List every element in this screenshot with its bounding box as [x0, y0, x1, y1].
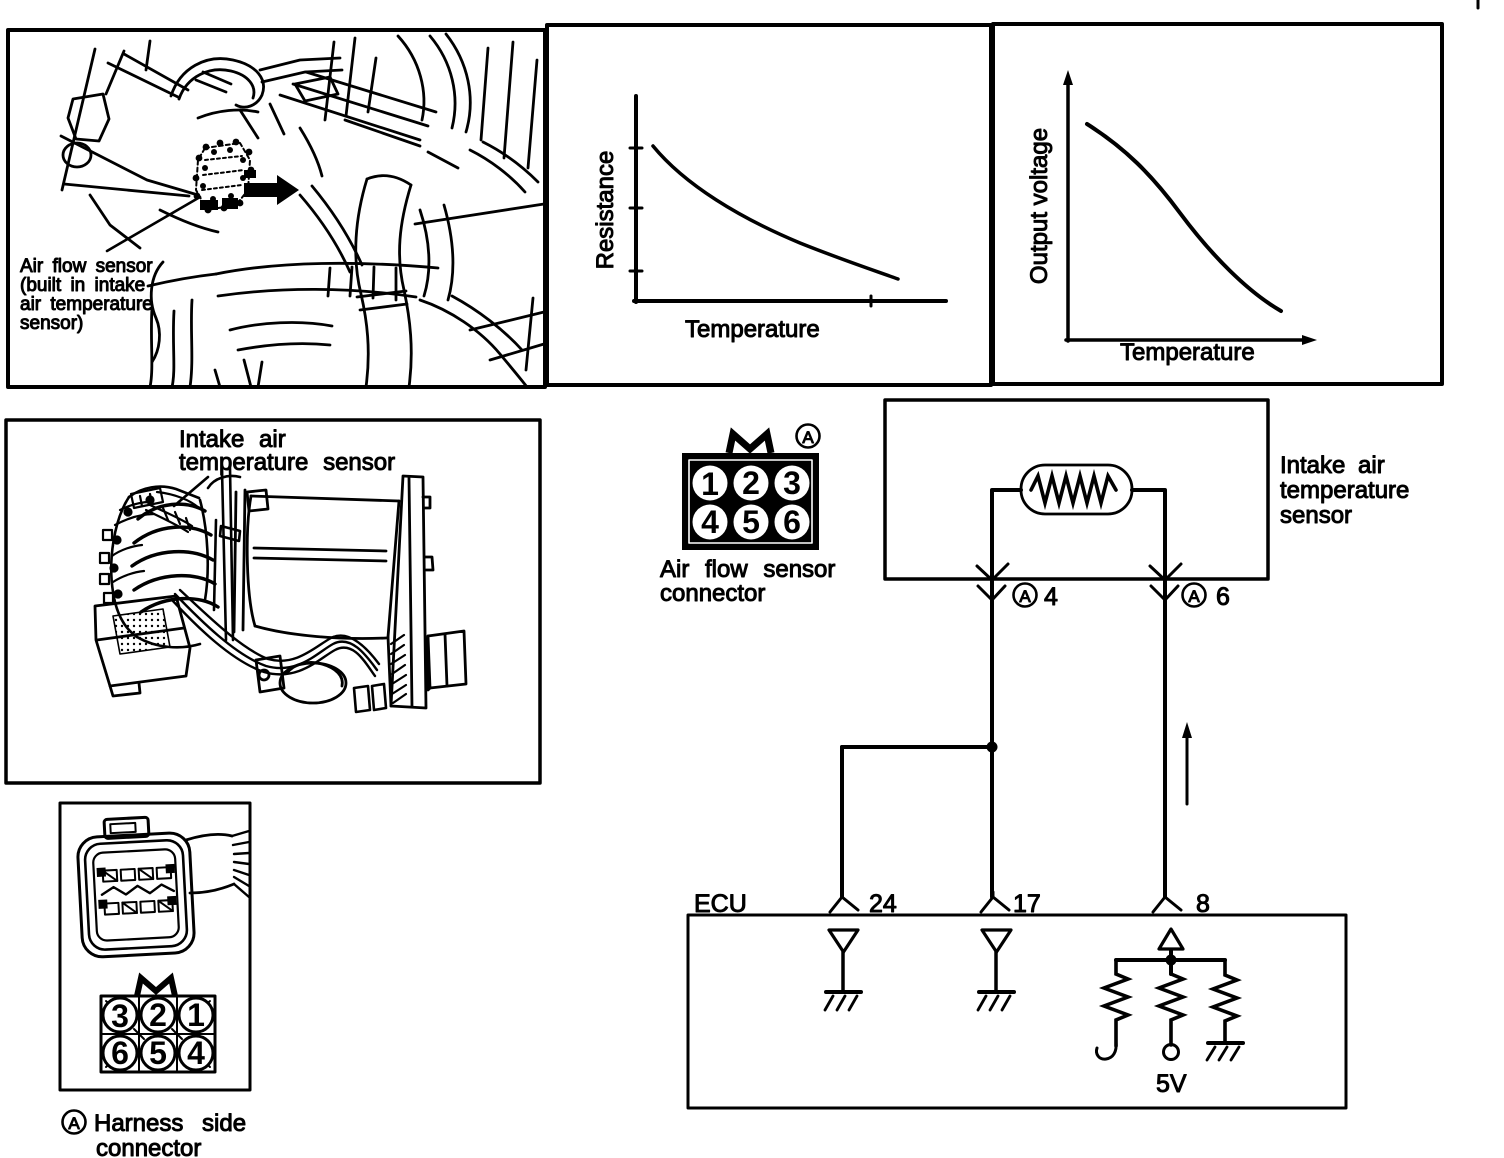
svg-text:Air flow sensor: Air flow sensor: [660, 556, 835, 583]
svg-text:1: 1: [701, 466, 719, 502]
svg-text:5V: 5V: [1156, 1070, 1187, 1098]
svg-text:6: 6: [1216, 583, 1230, 611]
svg-text:5: 5: [149, 1035, 167, 1071]
svg-text:sensor): sensor): [20, 313, 83, 334]
svg-text:6: 6: [783, 504, 801, 540]
svg-text:air temperature: air temperature: [20, 294, 153, 315]
svg-text:2: 2: [149, 997, 167, 1033]
svg-text:6: 6: [111, 1035, 129, 1071]
svg-text:A: A: [68, 1114, 80, 1133]
svg-text:4: 4: [1044, 583, 1058, 611]
svg-text:A: A: [802, 428, 814, 447]
svg-text:3: 3: [783, 465, 801, 501]
svg-text:Temperature: Temperature: [685, 316, 820, 343]
svg-text:sensor: sensor: [1280, 502, 1352, 529]
svg-text:Air flow sensor: Air flow sensor: [20, 256, 153, 277]
svg-text:Resistance: Resistance: [592, 151, 619, 270]
svg-text:Output voltage: Output voltage: [1026, 128, 1053, 284]
svg-text:ECU: ECU: [694, 890, 747, 918]
svg-text:Harness side: Harness side: [94, 1110, 246, 1137]
svg-text:24: 24: [869, 890, 897, 918]
svg-text:connector: connector: [660, 580, 765, 607]
svg-text:Intake air: Intake air: [1280, 452, 1385, 479]
svg-text:A: A: [1188, 587, 1200, 606]
svg-text:A: A: [1019, 587, 1031, 606]
svg-text:(built in intake: (built in intake: [20, 275, 145, 296]
svg-text:17: 17: [1013, 890, 1041, 918]
svg-text:Temperature: Temperature: [1120, 339, 1255, 366]
svg-text:8: 8: [1196, 890, 1210, 918]
svg-text:connector: connector: [96, 1135, 201, 1158]
svg-text:3: 3: [111, 998, 129, 1034]
svg-text:1: 1: [187, 997, 205, 1033]
svg-text:temperature: temperature: [1280, 477, 1409, 504]
svg-text:2: 2: [742, 465, 760, 501]
svg-text:5: 5: [742, 504, 760, 540]
svg-text:4: 4: [701, 504, 719, 540]
svg-text:4: 4: [187, 1035, 205, 1071]
svg-text:temperature sensor: temperature sensor: [179, 449, 395, 476]
